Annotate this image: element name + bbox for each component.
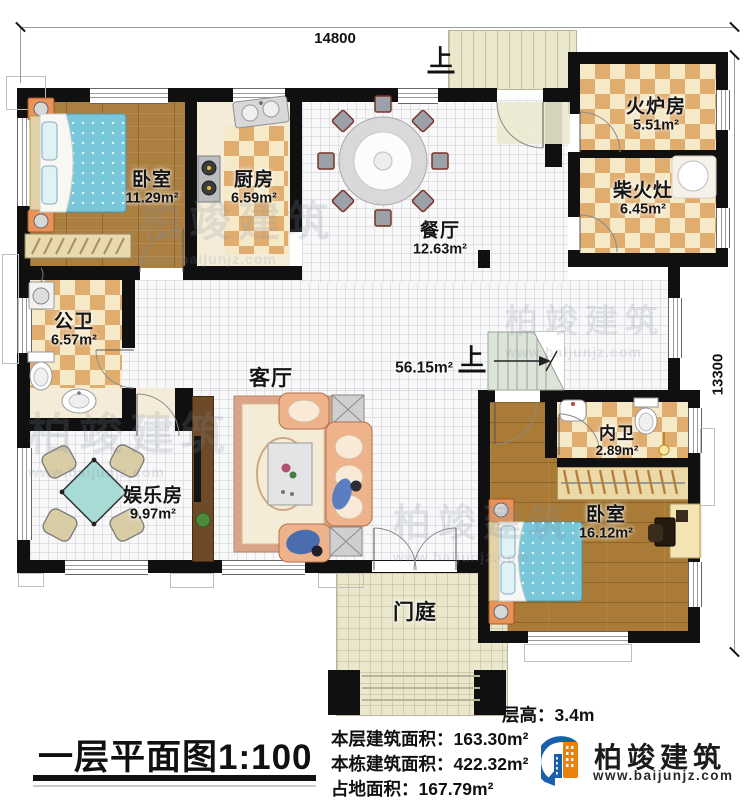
dimension-extension (20, 27, 21, 83)
info-value: 422.32m² (454, 754, 529, 774)
label-kitchen: 厨房6.59m² (231, 169, 277, 207)
company-logo-icon (541, 736, 589, 790)
info-line-floor-area: 本层建筑面积：163.30m² (331, 726, 528, 751)
info-value: 163.30m² (454, 729, 529, 749)
back-hall-patch (497, 102, 570, 144)
info-value: 167.79m² (419, 779, 494, 799)
stove (198, 156, 220, 202)
dimension-line-right (734, 55, 735, 653)
label-inner-bath: 内卫2.89m² (596, 424, 639, 458)
label-entry-porch: 门庭 (393, 601, 437, 625)
dimension-line-top (20, 27, 735, 28)
info-label: 本栋建筑面积： (331, 754, 454, 774)
title-underline-thin (33, 785, 316, 787)
title-underline (33, 775, 316, 781)
info-label: 本层建筑面积： (331, 729, 454, 749)
stairs-up-label-top: 上 (428, 47, 455, 74)
floor-height-value: 3.4m (555, 705, 595, 725)
info-line-footprint-area: 占地面积：167.79m² (331, 776, 493, 801)
dining-table-set (318, 96, 448, 226)
label-bedroom-tl: 卧室11.29m² (125, 169, 178, 207)
kitchen-sink (233, 96, 290, 128)
label-public-bath: 公卫6.57m² (51, 311, 97, 349)
closet-hangers (561, 470, 685, 494)
tv (194, 436, 210, 527)
floor-height-label: 层高： (502, 705, 555, 725)
info-label: 占地面积： (331, 779, 419, 799)
label-wood-stove: 柴火灶6.45m² (613, 180, 673, 218)
label-recreation: 娱乐房9.97m² (123, 485, 183, 523)
info-line-building-area: 本栋建筑面积：422.32m² (331, 751, 528, 776)
company-logo-website: www.baijunjz.com (593, 768, 734, 783)
label-furnace: 火炉房5.51m² (626, 96, 686, 134)
stairs-up-label-main: 上 (459, 346, 486, 373)
plan-title: 一层平面图1:100 (38, 729, 313, 780)
label-bedroom-br: 卧室16.12m² (579, 504, 633, 542)
bed-top-left (25, 98, 131, 258)
porch-steps (362, 676, 480, 700)
living-room-set (234, 393, 372, 562)
stove-basin (672, 156, 716, 198)
stairs-main (488, 332, 564, 390)
label-living-area: 56.15m² (395, 359, 453, 376)
label-living: 客厅 (249, 367, 293, 391)
dimension-top-value: 14800 (300, 30, 370, 47)
label-dining: 餐厅12.63m² (413, 220, 467, 258)
dimension-right-value: 13300 (710, 335, 727, 415)
floor-height-line: 层高：3.4m (502, 702, 594, 727)
floor-plan-page: 柏竣建筑 www.baijunjz.com 柏竣建筑 www.baijunjz.… (0, 0, 750, 802)
